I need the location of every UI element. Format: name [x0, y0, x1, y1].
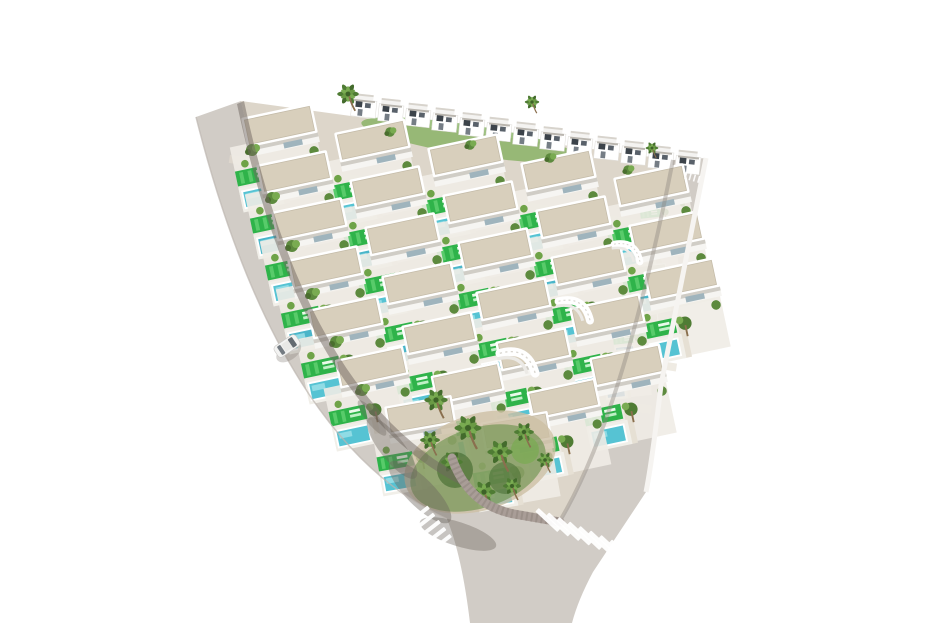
back-row-house — [540, 126, 567, 151]
back-row-house — [459, 112, 486, 137]
development-render — [0, 0, 935, 623]
back-row-house — [621, 140, 648, 165]
render-canvas — [0, 0, 935, 623]
back-row-house — [405, 102, 432, 127]
back-row-house — [432, 107, 459, 132]
palm-tree — [525, 95, 539, 113]
back-row-house — [594, 135, 621, 160]
back-row-house — [513, 121, 540, 146]
